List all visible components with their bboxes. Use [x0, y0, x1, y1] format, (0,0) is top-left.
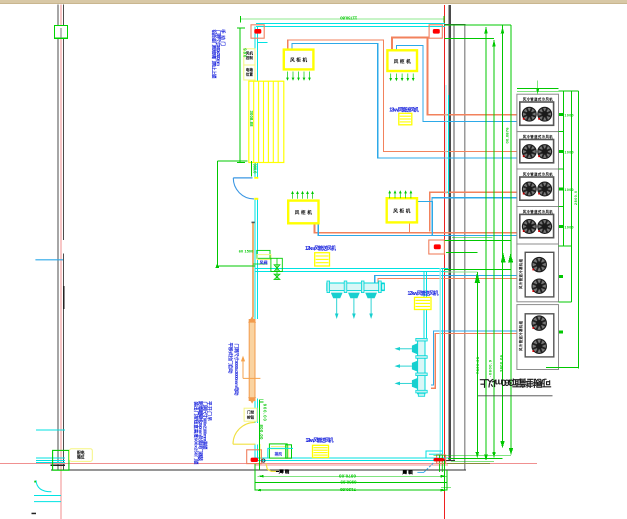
svg-text:900.0: 900.0: [252, 164, 257, 175]
svg-text:900.00: 900.00: [262, 404, 267, 422]
svg-text:风冷管道冷凝机组: 风冷管道冷凝机组: [518, 258, 523, 289]
svg-text:1000: 1000: [565, 188, 574, 192]
svg-text:排风: 排风: [275, 451, 283, 456]
svg-text:风冷管道式冷风机: 风冷管道式冷风机: [523, 209, 554, 214]
svg-text:1000: 1000: [565, 151, 574, 155]
svg-text:1000: 1000: [565, 114, 574, 118]
svg-text:2800.0: 2800.0: [574, 191, 578, 205]
svg-text:12kw风管送风机: 12kw风管送风机: [389, 106, 419, 113]
svg-text:风冷管道式冷风机: 风冷管道式冷风机: [523, 134, 554, 139]
svg-text:6870.08: 6870.08: [338, 473, 356, 478]
svg-text:箱位: 箱位: [77, 455, 85, 460]
svg-text:11730.80: 11730.80: [340, 16, 358, 21]
svg-text:平移式拉门自动: 平移式拉门自动: [227, 343, 234, 374]
svg-text:可悬挂墙面3.60m以上: 可悬挂墙面3.60m以上: [479, 378, 552, 389]
svg-text:3800.06: 3800.06: [498, 354, 503, 372]
svg-text:12kw风管送风机: 12kw风管送风机: [408, 290, 439, 297]
svg-text:风柜机: 风柜机: [295, 209, 312, 216]
svg-text:门禁: 门禁: [247, 410, 255, 415]
svg-text:800.00: 800.00: [259, 425, 264, 441]
svg-text:7130.80: 7130.80: [339, 487, 356, 492]
svg-text:风柜机: 风柜机: [393, 208, 410, 215]
svg-text:风冷管道冷凝机组: 风冷管道冷凝机组: [518, 320, 523, 351]
svg-text:1000: 1000: [565, 226, 574, 230]
svg-text:位置: 位置: [246, 71, 254, 76]
svg-text:风冷管道式冷风机: 风冷管道式冷风机: [523, 96, 554, 101]
svg-text:-0800.9: -0800.9: [487, 359, 492, 377]
svg-text:装出门按钮盒高度900x250门锁: 装出门按钮盒高度900x250门锁: [193, 401, 200, 465]
svg-text:12kw风管送风机: 12kw风管送风机: [306, 437, 334, 444]
svg-text:门洞尺寸3000x3000mm电动: 门洞尺寸3000x3000mm电动: [233, 344, 240, 396]
svg-text:风柜机: 风柜机: [394, 58, 411, 65]
svg-text:980: 980: [243, 48, 248, 58]
svg-text:按钮: 按钮: [247, 414, 255, 419]
svg-text:7800.08: 7800.08: [475, 356, 480, 374]
svg-text:60 1500: 60 1500: [239, 249, 254, 253]
svg-text:风阀: 风阀: [260, 259, 268, 265]
svg-text:铝合金门框玻璃门禁止上锁: 铝合金门框玻璃门禁止上锁: [211, 30, 218, 79]
svg-text:风柜机: 风柜机: [290, 57, 307, 64]
svg-text:配电: 配电: [77, 450, 85, 455]
svg-text:3008.88: 3008.88: [249, 111, 254, 128]
svg-text:00.0876: 00.0876: [505, 127, 510, 144]
svg-text:12kw风管送风机: 12kw风管送风机: [305, 245, 336, 252]
svg-text:电箱: 电箱: [246, 67, 254, 72]
svg-text:风冷管道式冷风机: 风冷管道式冷风机: [523, 171, 554, 176]
svg-text:6930.03: 6930.03: [340, 480, 357, 485]
